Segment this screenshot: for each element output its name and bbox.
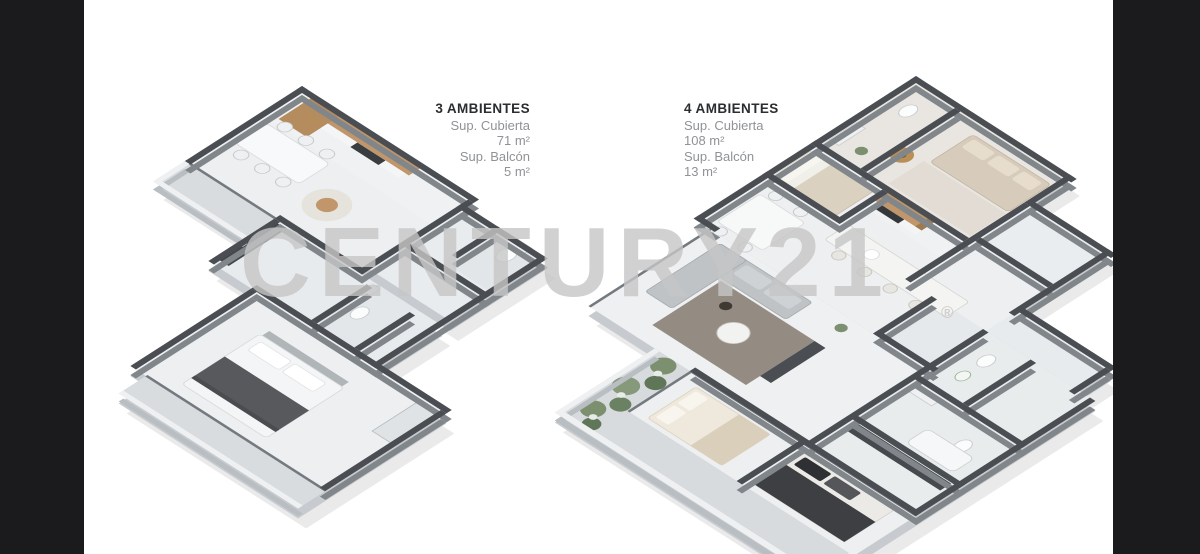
plan-title: 4 AMBIENTES [684,101,904,117]
balcony-label: Sup. Balcón [330,149,530,165]
century21-watermark: CENTURY21 [240,213,891,311]
plan-title: 3 AMBIENTES [330,101,530,117]
surface-label: Sup. Cubierta [684,118,904,134]
surface-label: Sup. Cubierta [330,118,530,134]
balcony-value: 13 m² [684,164,904,180]
balcony-label: Sup. Balcón [684,149,904,165]
plan-info-4-ambientes: 4 AMBIENTES Sup. Cubierta 108 m² Sup. Ba… [684,101,904,180]
registered-trademark-icon: ® [941,303,954,323]
listing-image: CENTURY21 ® 3 AMBIENTES Sup. Cubierta 71… [0,0,1200,554]
letterbox-right [1113,0,1200,554]
surface-value: 71 m² [330,133,530,149]
letterbox-left [0,0,84,554]
balcony-value: 5 m² [330,164,530,180]
plan-info-3-ambientes: 3 AMBIENTES Sup. Cubierta 71 m² Sup. Bal… [330,101,530,180]
surface-value: 108 m² [684,133,904,149]
